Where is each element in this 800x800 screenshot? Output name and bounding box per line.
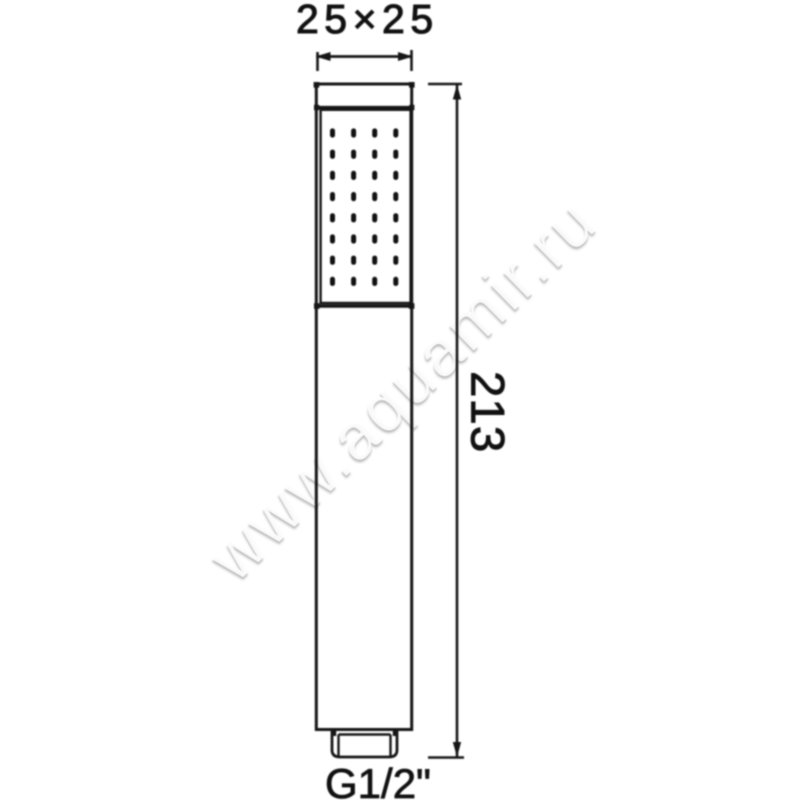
svg-text:G1/2": G1/2": [325, 760, 431, 800]
svg-text:213: 213: [461, 371, 514, 453]
svg-text:25×25: 25×25: [296, 0, 439, 42]
